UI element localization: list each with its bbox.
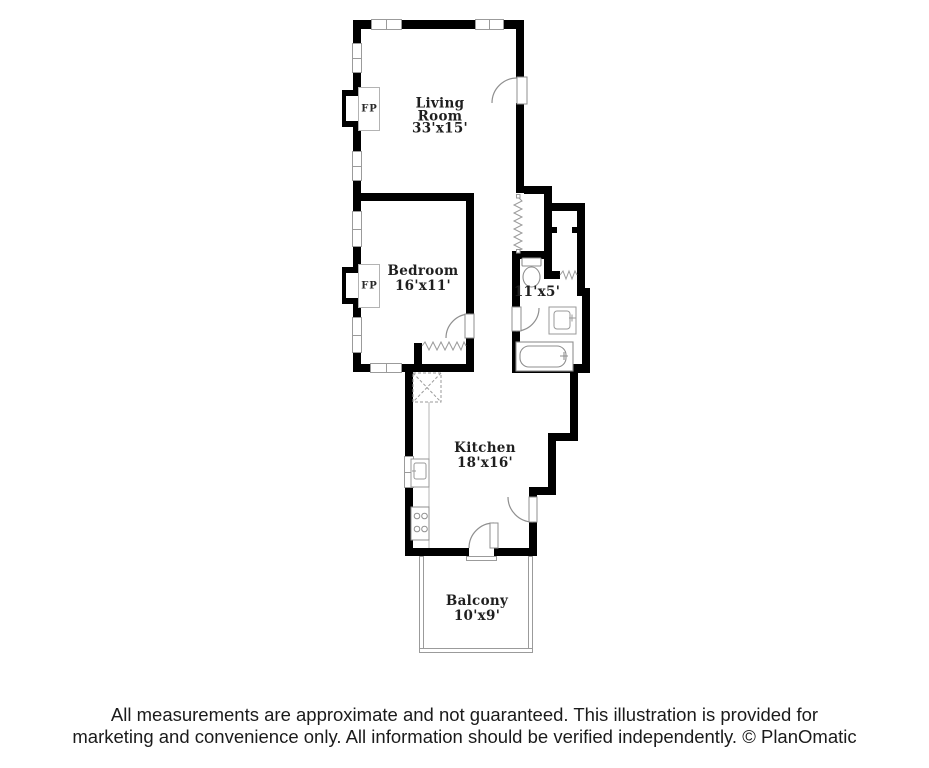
fireplace-living-label: FP (361, 104, 378, 115)
bathtub-basin (520, 346, 566, 367)
living-room-dims: 33'x15' (412, 122, 468, 135)
stove-burner-2 (422, 513, 428, 519)
balcony-name: Balcony (446, 594, 508, 609)
door-arc-living (492, 78, 517, 103)
accordion-door-closet (560, 271, 577, 279)
living-room-label: Living Room 33'x15' (412, 97, 468, 135)
bedroom-dims: 16'x11' (388, 279, 459, 294)
stove-burner-3 (414, 526, 420, 532)
accordion-end-cap-bottom (517, 250, 521, 254)
door-leaf-balcony (490, 523, 498, 548)
balcony-dims: 10'x9' (446, 609, 508, 624)
floor-plan: Living Room 33'x15' Bedroom 16'x11' 11'x… (0, 0, 929, 768)
accordion-door-hall (514, 197, 522, 251)
stove (411, 507, 429, 540)
door-leaf-living (517, 77, 527, 104)
bathroom-label: 11'x5' (514, 286, 560, 299)
balcony-label: Balcony 10'x9' (446, 594, 508, 624)
bathroom-dims: 11'x5' (514, 286, 560, 299)
stove-burner-1 (414, 513, 420, 519)
disclaimer-line-1: All measurements are approximate and not… (0, 704, 929, 726)
disclaimer: All measurements are approximate and not… (0, 704, 929, 747)
kitchen-appliance-x (413, 373, 441, 402)
bedroom-label: Bedroom 16'x11' (388, 264, 459, 294)
door-leaf-bathroom (512, 307, 521, 331)
kitchen-name: Kitchen (454, 441, 516, 456)
stove-burner-4 (422, 526, 428, 532)
kitchen-dims: 18'x16' (454, 456, 516, 471)
accordion-door-bedroom-closet (422, 342, 466, 350)
kitchen-label: Kitchen 18'x16' (454, 441, 516, 471)
accordion-end-cap-top (517, 195, 521, 199)
disclaimer-line-2: marketing and convenience only. All info… (0, 726, 929, 748)
fireplace-bedroom-label: FP (361, 281, 378, 292)
bath-sink-basin (554, 311, 570, 329)
toilet-tank (522, 258, 541, 266)
door-leaf-kitchen-hall (529, 497, 537, 522)
door-leaf-bedroom (465, 314, 474, 338)
bedroom-name: Bedroom (388, 264, 459, 279)
